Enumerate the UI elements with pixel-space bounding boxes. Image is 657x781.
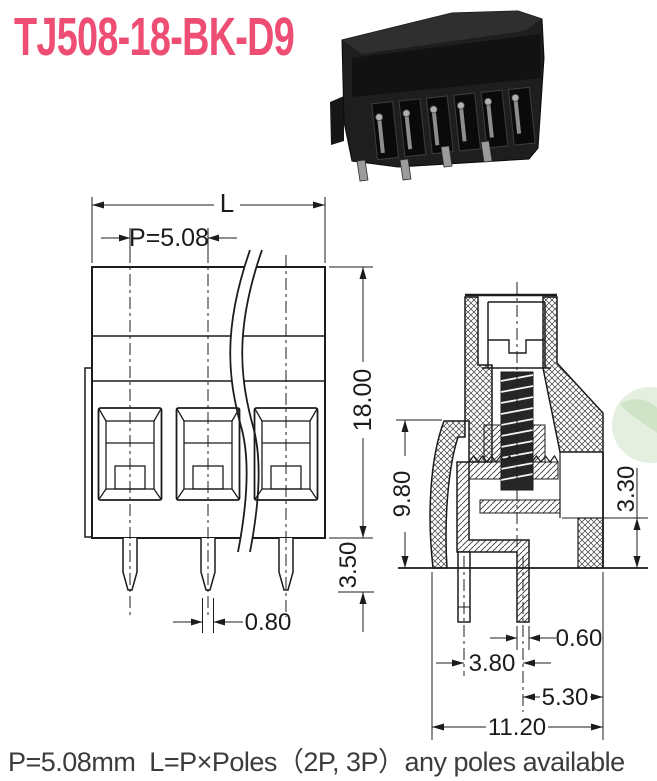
clamp-plate — [469, 462, 501, 479]
clamp-plate — [533, 462, 558, 479]
housing-rear-foot — [578, 518, 603, 568]
dimension-pin-width: 0.80 — [173, 598, 291, 636]
dimension-pin-thickness: 0.60 — [490, 625, 602, 652]
dimension-pin-length: 3.50 — [335, 542, 374, 632]
mounting-flange — [85, 368, 92, 537]
dimension-pin-to-edge: 5.30 — [523, 684, 603, 711]
clamp-nut — [533, 425, 545, 462]
side-view-drawing: 9.80 3.30 0.60 — [389, 282, 648, 741]
contact-slab — [480, 500, 560, 513]
housing-right-wall — [543, 297, 603, 452]
dim-label-overall-width: L — [220, 188, 234, 218]
product-photo — [330, 11, 544, 181]
dim-label-pin-to-edge: 5.30 — [542, 684, 589, 711]
technical-drawing: L P=5.08 18.00 — [0, 0, 657, 781]
dim-label-pin-thickness: 0.60 — [556, 625, 603, 652]
dim-label-pin-width: 0.80 — [245, 609, 292, 636]
front-view-drawing: L P=5.08 18.00 — [85, 188, 377, 636]
dim-label-step-height: 3.30 — [613, 466, 640, 513]
dimension-pin-spacing: 3.80 — [436, 556, 551, 712]
dimension-pitch: P=5.08 — [101, 224, 237, 252]
dim-label-height: 18.00 — [349, 369, 377, 432]
dim-label-body-height: 9.80 — [389, 471, 416, 518]
dim-label-pin-spacing: 3.80 — [469, 650, 516, 677]
datasheet-page: TJ508-18-BK-D9 — [0, 0, 657, 781]
dimension-height: 18.00 — [329, 267, 377, 538]
dim-label-total-depth: 11.20 — [488, 714, 546, 741]
dim-label-pitch: P=5.08 — [129, 224, 209, 252]
watermark — [612, 387, 657, 463]
dim-label-pin-length: 3.50 — [335, 542, 362, 589]
footer-note: P=5.08mm L=P×Poles（2P, 3P）any poles avai… — [8, 740, 625, 779]
dimension-step-height: 3.30 — [562, 466, 648, 568]
